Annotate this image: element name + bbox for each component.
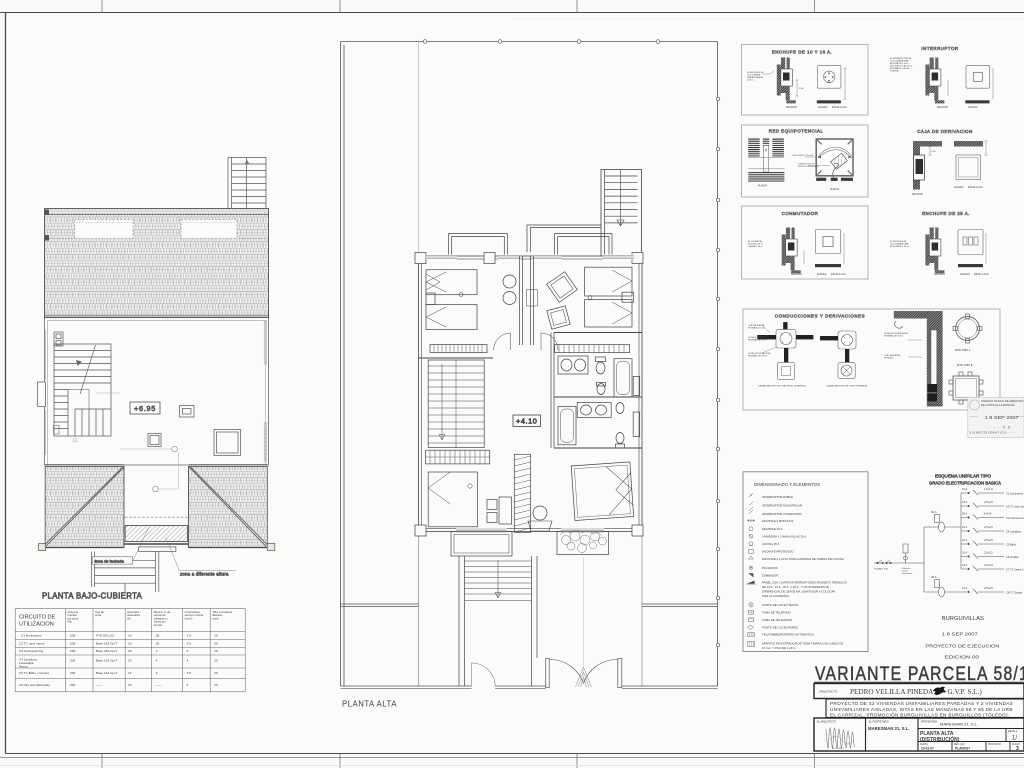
svg-text:C8 TC Garaje: C8 TC Garaje bbox=[1006, 591, 1023, 595]
svg-text:CONDUCCIONES Y DERIVACIONES: CONDUCCIONES Y DERIVACIONES bbox=[775, 314, 865, 319]
svg-text:+4.10: +4.10 bbox=[516, 417, 537, 426]
svg-text:C6 Auxiliar: C6 Auxiliar bbox=[1006, 555, 1019, 559]
svg-text:C6 Aire acondicionado: C6 Aire acondicionado bbox=[19, 683, 50, 687]
svg-text:Base 16A 2p+T: Base 16A 2p+T bbox=[96, 659, 117, 663]
svg-text:POR LA COMPAÑIA): POR LA COMPAÑIA) bbox=[762, 593, 789, 598]
svg-text:COCINA 25 A: COCINA 25 A bbox=[762, 542, 779, 546]
svg-text:DIMENSIONADO Y ELEMENTOS: DIMENSIONADO Y ELEMENTOS bbox=[754, 482, 820, 488]
svg-text:SECCION: SECCION bbox=[791, 273, 802, 276]
svg-text:C2 TC usos varios: C2 TC usos varios bbox=[19, 642, 45, 646]
svg-text:(W): (W) bbox=[68, 620, 72, 624]
svg-text:C3 Cocina+horno: C3 Cocina+horno bbox=[19, 649, 43, 653]
svg-text:200: 200 bbox=[70, 659, 75, 663]
svg-text:16 A: 16 A bbox=[962, 538, 967, 542]
svg-text:TELETIMBRE/PORTERO AUTOMATICO: TELETIMBRE/PORTERO AUTOMATICO bbox=[762, 633, 815, 637]
svg-text:PANEL CON CUATRO INTERRUPTORES: PANEL CON CUATRO INTERRUPTORES MAGNETO T… bbox=[762, 581, 847, 585]
svg-text:16: 16 bbox=[214, 634, 218, 638]
svg-text:M. TOLEDO: M. TOLEDO bbox=[832, 748, 844, 750]
svg-text:(A): (A) bbox=[127, 616, 131, 620]
svg-text:20: 20 bbox=[214, 642, 218, 646]
svg-text:25 A: 25 A bbox=[962, 512, 967, 516]
svg-text:30: 30 bbox=[156, 634, 160, 638]
svg-text:zona a diferente altura: zona a diferente altura bbox=[180, 572, 229, 577]
svg-text:C1 Iluminacion: C1 Iluminacion bbox=[1006, 492, 1024, 496]
svg-text:NOMINAL DE 750 V.: NOMINAL DE 750 V. bbox=[748, 355, 768, 358]
svg-text:6+6+3: 6+6+3 bbox=[984, 512, 992, 516]
svg-text:10 A: 10 A bbox=[962, 487, 967, 491]
svg-text:MARESMAN 21, S.L.: MARESMAN 21, S.L. bbox=[940, 722, 978, 727]
svg-text:ALZADO: ALZADO bbox=[960, 273, 970, 276]
svg-text:ENCHUFE DE 10 Y 16 A.: ENCHUFE DE 10 Y 16 A. bbox=[772, 50, 832, 55]
svg-text:1.5: 1.5 bbox=[187, 634, 192, 638]
svg-text:3: 3 bbox=[1016, 746, 1019, 752]
svg-text:SECCION: SECCION bbox=[912, 193, 923, 196]
svg-text:ZUMBADOR: ZUMBADOR bbox=[762, 573, 778, 577]
svg-text:MARESMAN 21, S.L.: MARESMAN 21, S.L. bbox=[868, 726, 910, 731]
svg-text:INTERRUPTOR CONMUTADO: INTERRUPTOR CONMUTADO bbox=[762, 512, 802, 516]
svg-text:1 8 SEP 2007: 1 8 SEP 2007 bbox=[942, 632, 979, 637]
svg-text:PLANTA ALTA: PLANTA ALTA bbox=[342, 700, 397, 709]
svg-text:ESCALA 1/10: ESCALA 1/10 bbox=[974, 273, 989, 276]
svg-text:V I S A D O T E L E M A T I C: V I S A D O T E L E M A T I C O ········ bbox=[970, 431, 1014, 435]
svg-text:TOMA DE TELEFONO: TOMA DE TELEFONO bbox=[762, 610, 792, 614]
svg-text:TOMA DE TELEVISION: TOMA DE TELEVISION bbox=[762, 618, 792, 622]
svg-text:Base 25A 2p+T: Base 25A 2p+T bbox=[96, 649, 117, 653]
svg-text:ESQUEMA UNIFILAR TIPO: ESQUEMA UNIFILAR TIPO bbox=[935, 474, 991, 479]
svg-text:ALTURA DE 0,30 m.: ALTURA DE 0,30 m. bbox=[890, 245, 909, 248]
svg-text:2.5: 2.5 bbox=[187, 671, 192, 675]
svg-text:(mm): (mm) bbox=[212, 616, 218, 620]
svg-text:C3 Cocina+horno: C3 Cocina+horno bbox=[1006, 516, 1024, 520]
svg-text:4: 4 bbox=[187, 659, 189, 663]
svg-text:INTERRUPTOR DOBLE: INTERRUPTOR DOBLE bbox=[762, 495, 793, 499]
svg-text:200: 200 bbox=[70, 642, 75, 646]
svg-text:ALZADO: ALZADO bbox=[817, 273, 827, 276]
svg-text:CARA A 1,10 m.: CARA A 1,10 m. bbox=[748, 245, 763, 248]
svg-text:ENCHUFE A 1,20 M. PARA CAMPANA: ENCHUFE A 1,20 M. PARA CAMPANA DE HUMOS … bbox=[762, 557, 844, 561]
svg-text:CAJA DE DERIVACION: CAJA DE DERIVACION bbox=[917, 129, 973, 134]
svg-text:25: 25 bbox=[214, 649, 218, 653]
svg-text:200: 200 bbox=[70, 683, 75, 687]
svg-text:200: 200 bbox=[70, 649, 75, 653]
svg-text:2,5+2,5: 2,5+2,5 bbox=[984, 525, 993, 529]
svg-text:G.V.P. S.L.): G.V.P. S.L.) bbox=[948, 688, 983, 696]
svg-text:ENCHUFE 16 A: ENCHUFE 16 A bbox=[762, 527, 782, 531]
svg-text:UNIFAMILIARES AISLADAS, SITA: UNIFAMILIARES AISLADAS, SITAS EN LAS MAN… bbox=[830, 707, 1013, 712]
svg-text:20: 20 bbox=[128, 659, 132, 663]
svg-text:UTILIZACION: UTILIZACION bbox=[19, 622, 54, 628]
svg-text:CON. EQUIP. 2,5 mm2: CON. EQUIP. 2,5 mm2 bbox=[792, 155, 814, 157]
svg-text:PTO DE LUZ: PTO DE LUZ bbox=[96, 634, 114, 638]
svg-text:LAVADORA Y LAVAVAJILLAS 25 A.: LAVADORA Y LAVAVAJILLAS 25 A. bbox=[762, 534, 807, 538]
svg-text:PROYECTO DE 32 VIVIENDAS U: PROYECTO DE 32 VIVIENDAS UNIFAMILIARES P… bbox=[830, 701, 1013, 706]
svg-text:ESCALA 1/10: ESCALA 1/10 bbox=[968, 186, 983, 189]
svg-text:20: 20 bbox=[214, 671, 218, 675]
svg-text:C2 TC usos varios: C2 TC usos varios bbox=[1006, 505, 1024, 509]
svg-text:200: 200 bbox=[70, 634, 75, 638]
svg-text:Ø DE TUBO B: Ø DE TUBO B bbox=[957, 364, 973, 367]
svg-text:Ø DE TUBO A: Ø DE TUBO A bbox=[955, 349, 971, 352]
svg-text:(mm2): (mm2) bbox=[185, 616, 193, 620]
svg-text:normativas: normativas bbox=[902, 572, 912, 575]
svg-text:GRADO ELECTRIFICACION BASICA: GRADO ELECTRIFICACION BASICA bbox=[929, 481, 1002, 486]
svg-text:SECCION: SECCION bbox=[934, 273, 945, 276]
svg-text:BURGUIVILLAS: BURGUIVILLAS bbox=[942, 616, 985, 622]
svg-text:+6.95: +6.95 bbox=[134, 404, 156, 413]
svg-text:200: 200 bbox=[70, 671, 75, 675]
svg-text:C5 Baño: C5 Baño bbox=[1006, 543, 1017, 547]
svg-text:RED EQUIPOTENCIAL: RED EQUIPOTENCIAL bbox=[769, 129, 824, 134]
svg-text:C1 Iluminacion: C1 Iluminacion bbox=[21, 634, 42, 638]
svg-text:ALZADO: ALZADO bbox=[954, 186, 964, 189]
svg-text:30 A: 30 A bbox=[931, 510, 937, 514]
svg-text:16 A: 16 A bbox=[962, 500, 967, 504]
svg-text:NOMINAL DE 750 V.: NOMINAL DE 750 V. bbox=[884, 335, 904, 338]
svg-text:(CANALIZACION POR TUBO EN EL I: (CANALIZACION POR TUBO EN EL INTERIOR) bbox=[758, 385, 806, 388]
svg-text:ALZADO: ALZADO bbox=[968, 106, 978, 109]
svg-text:C7 TC Varios 2: C7 TC Varios 2 bbox=[1006, 568, 1024, 572]
svg-text:FLEXIBLE: FLEXIBLE bbox=[884, 358, 894, 360]
svg-text:ESCALA: ESCALA bbox=[1008, 730, 1018, 733]
svg-text:PUNTO DE LUZ EN PARED: PUNTO DE LUZ EN PARED bbox=[762, 625, 798, 629]
svg-text:COLEGIO OFICIAL DE ARQUITECTOS: COLEGIO OFICIAL DE ARQUITECTOS bbox=[981, 399, 1024, 403]
svg-text:16: 16 bbox=[128, 671, 132, 675]
svg-text:toma: toma bbox=[95, 613, 101, 617]
svg-text:CIRCUITO DE: CIRCUITO DE bbox=[19, 615, 56, 621]
svg-text:1/: 1/ bbox=[1012, 736, 1017, 742]
svg-text:6: 6 bbox=[156, 671, 158, 675]
svg-text:DIFERENCIAL DE 25A/30 MA. (LIM: DIFERENCIAL DE 25A/30 MA. (LIMITADOR A C… bbox=[762, 590, 835, 594]
svg-text:PROYECTO DE EJECUCION: PROYECTO DE EJECUCION bbox=[925, 644, 1000, 650]
svg-text:20: 20 bbox=[214, 659, 218, 663]
svg-text:ESCALA 1/10: ESCALA 1/10 bbox=[831, 273, 846, 276]
svg-text:SECCION: SECCION bbox=[928, 405, 938, 407]
svg-text:20: 20 bbox=[156, 642, 160, 646]
svg-text:2,5+2,5: 2,5+2,5 bbox=[984, 500, 993, 504]
svg-text:PROYECTO: PROYECTO bbox=[988, 744, 1001, 746]
svg-text:PLANTA BAJO-CUBIERTA: PLANTA BAJO-CUBIERTA bbox=[42, 592, 143, 601]
svg-text:PROPIETARIO: PROPIETARIO bbox=[921, 721, 937, 724]
svg-text:linea de fachada: linea de fachada bbox=[95, 558, 125, 563]
svg-text:16 A: 16 A bbox=[962, 563, 967, 567]
svg-text:FLEXIBLE 13 mm: FLEXIBLE 13 mm bbox=[748, 328, 765, 330]
svg-text:0,30 m.: 0,30 m. bbox=[747, 80, 754, 82]
svg-text:10: 10 bbox=[128, 634, 132, 638]
svg-text:16 A: 16 A bbox=[962, 586, 967, 590]
svg-text:SECCION: SECCION bbox=[786, 106, 797, 109]
svg-text:10-01-07: 10-01-07 bbox=[921, 746, 934, 750]
svg-text:ENCHUFE PROTEGIDO: ENCHUFE PROTEGIDO bbox=[762, 549, 794, 553]
svg-text:INTERRUPTOR MONOPOLAR: INTERRUPTOR MONOPOLAR bbox=[762, 504, 802, 508]
svg-text:2.5: 2.5 bbox=[187, 642, 192, 646]
svg-text:PROTECCION 4 mm2: PROTECCION 4 mm2 bbox=[798, 166, 820, 168]
svg-text:PEDRO VELILLA PINEDA (: PEDRO VELILLA PINEDA ( bbox=[850, 688, 938, 696]
svg-text:2,5+2,5: 2,5+2,5 bbox=[984, 586, 993, 590]
svg-text:EL PROPIETARIO: EL PROPIETARIO bbox=[869, 721, 889, 724]
svg-text:25: 25 bbox=[128, 649, 132, 653]
svg-text:6: 6 bbox=[187, 683, 189, 687]
svg-text:2,5+2,5: 2,5+2,5 bbox=[984, 538, 993, 542]
svg-text:FUSIBLE: FUSIBLE bbox=[874, 569, 884, 571]
svg-text:ALZADO: ALZADO bbox=[818, 106, 828, 109]
svg-text:PLANOS7: PLANOS7 bbox=[955, 746, 970, 750]
svg-text:circuito: circuito bbox=[154, 623, 163, 627]
svg-text:16: 16 bbox=[128, 642, 132, 646]
svg-text:ENCHUFE 3 MODULOS: ENCHUFE 3 MODULOS bbox=[762, 519, 793, 523]
svg-text:30 A: 30 A bbox=[931, 575, 937, 579]
svg-text:16 A: 16 A bbox=[962, 551, 967, 555]
svg-text:PULSADOR: PULSADOR bbox=[762, 566, 778, 570]
svg-text:PUNTO DE LUZ EN TECHO: PUNTO DE LUZ EN TECHO bbox=[762, 603, 799, 607]
svg-text:Base 16A 2p+T: Base 16A 2p+T bbox=[96, 642, 117, 646]
svg-text:PLANTA: PLANTA bbox=[830, 188, 840, 191]
svg-text:2,5+2,5: 2,5+2,5 bbox=[984, 551, 993, 555]
svg-text:Base 16A 2p+T: Base 16A 2p+T bbox=[96, 671, 117, 675]
svg-text:2,5+2,5: 2,5+2,5 bbox=[984, 563, 993, 567]
svg-text:1,5+1,5: 1,5+1,5 bbox=[984, 487, 993, 491]
svg-text:——: —— bbox=[156, 683, 163, 687]
svg-text:EDICION 00: EDICION 00 bbox=[945, 655, 980, 660]
svg-text:25: 25 bbox=[128, 683, 132, 687]
svg-text:(CANALIZACION POR TUBO EN PARE: (CANALIZACION POR TUBO EN PARED) bbox=[826, 385, 868, 388]
svg-text:ENCHUFE DE 25 A.: ENCHUFE DE 25 A. bbox=[922, 211, 970, 216]
svg-text:4: 4 bbox=[156, 659, 158, 663]
svg-text:· · · · 0 0: · · · · 0 0 bbox=[985, 426, 1011, 430]
svg-text:C5 TC Baño y Cocina: C5 TC Baño y Cocina bbox=[19, 671, 49, 675]
svg-text:2: 2 bbox=[156, 649, 158, 653]
svg-text:INTERRUPTOR: INTERRUPTOR bbox=[921, 46, 958, 51]
svg-text:——: —— bbox=[96, 683, 103, 687]
svg-text:C4 Lavadora: C4 Lavadora bbox=[1006, 530, 1021, 534]
svg-text:CONMUTADOR: CONMUTADOR bbox=[782, 211, 819, 216]
svg-text:Termo: Termo bbox=[19, 665, 28, 669]
svg-text:SECCION: SECCION bbox=[937, 106, 948, 109]
svg-text:DE CASTILLA-LA MANCHA: DE CASTILLA-LA MANCHA bbox=[981, 403, 1015, 407]
svg-text:PUERTA: PUERTA bbox=[890, 70, 899, 73]
svg-text:PLANTA: PLANTA bbox=[758, 185, 768, 188]
svg-text:25: 25 bbox=[214, 683, 218, 687]
svg-text:6: 6 bbox=[187, 649, 189, 653]
svg-text:16 A: 16 A bbox=[962, 525, 967, 529]
svg-text:APARATO REGISTRADOR DE TOMA TI: APARATO REGISTRADOR DE TOMA TIERRA CON C… bbox=[762, 641, 843, 645]
svg-text:NOMINAL DE 750 V.: NOMINAL DE 750 V. bbox=[748, 339, 768, 342]
svg-text:16 mm. Y PICA DE 1,20 m.: 16 mm. Y PICA DE 1,20 m. bbox=[762, 646, 797, 650]
svg-text:IGA: IGA bbox=[884, 568, 888, 571]
svg-text:DE 10 A., 15 A., 20 A. Y 25 A.: DE 10 A., 15 A., 20 A. Y 25 A., Y UN INT… bbox=[762, 585, 829, 589]
svg-text:EL CARRIZAL, PROMOCIÓN BURG: EL CARRIZAL, PROMOCIÓN BURGUIVILLAS EN B… bbox=[830, 712, 1009, 718]
svg-text:1 8 SEP 2007: 1 8 SEP 2007 bbox=[985, 415, 1020, 420]
svg-text:ARQUITECTO:: ARQUITECTO: bbox=[819, 690, 838, 694]
svg-text:EL ARQUITECTO: EL ARQUITECTO bbox=[817, 721, 836, 724]
svg-text:ESCALA 1/10: ESCALA 1/10 bbox=[832, 106, 847, 109]
